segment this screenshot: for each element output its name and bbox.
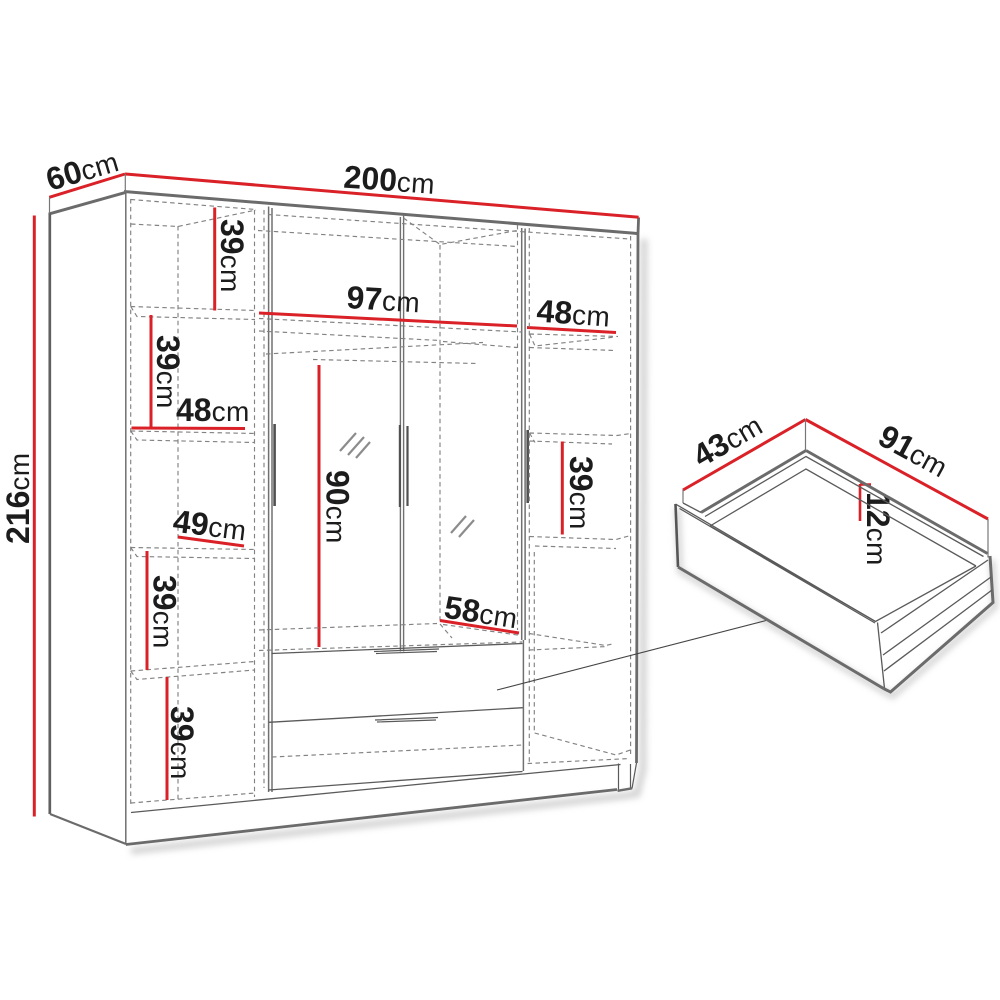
svg-text:39cm: 39cm (147, 575, 183, 649)
svg-text:39cm: 39cm (214, 219, 250, 293)
svg-text:39cm: 39cm (164, 706, 200, 780)
svg-text:48cm: 48cm (176, 392, 250, 428)
svg-text:90cm: 90cm (320, 470, 356, 544)
svg-text:39cm: 39cm (563, 456, 599, 530)
svg-text:216cm: 216cm (0, 452, 36, 544)
